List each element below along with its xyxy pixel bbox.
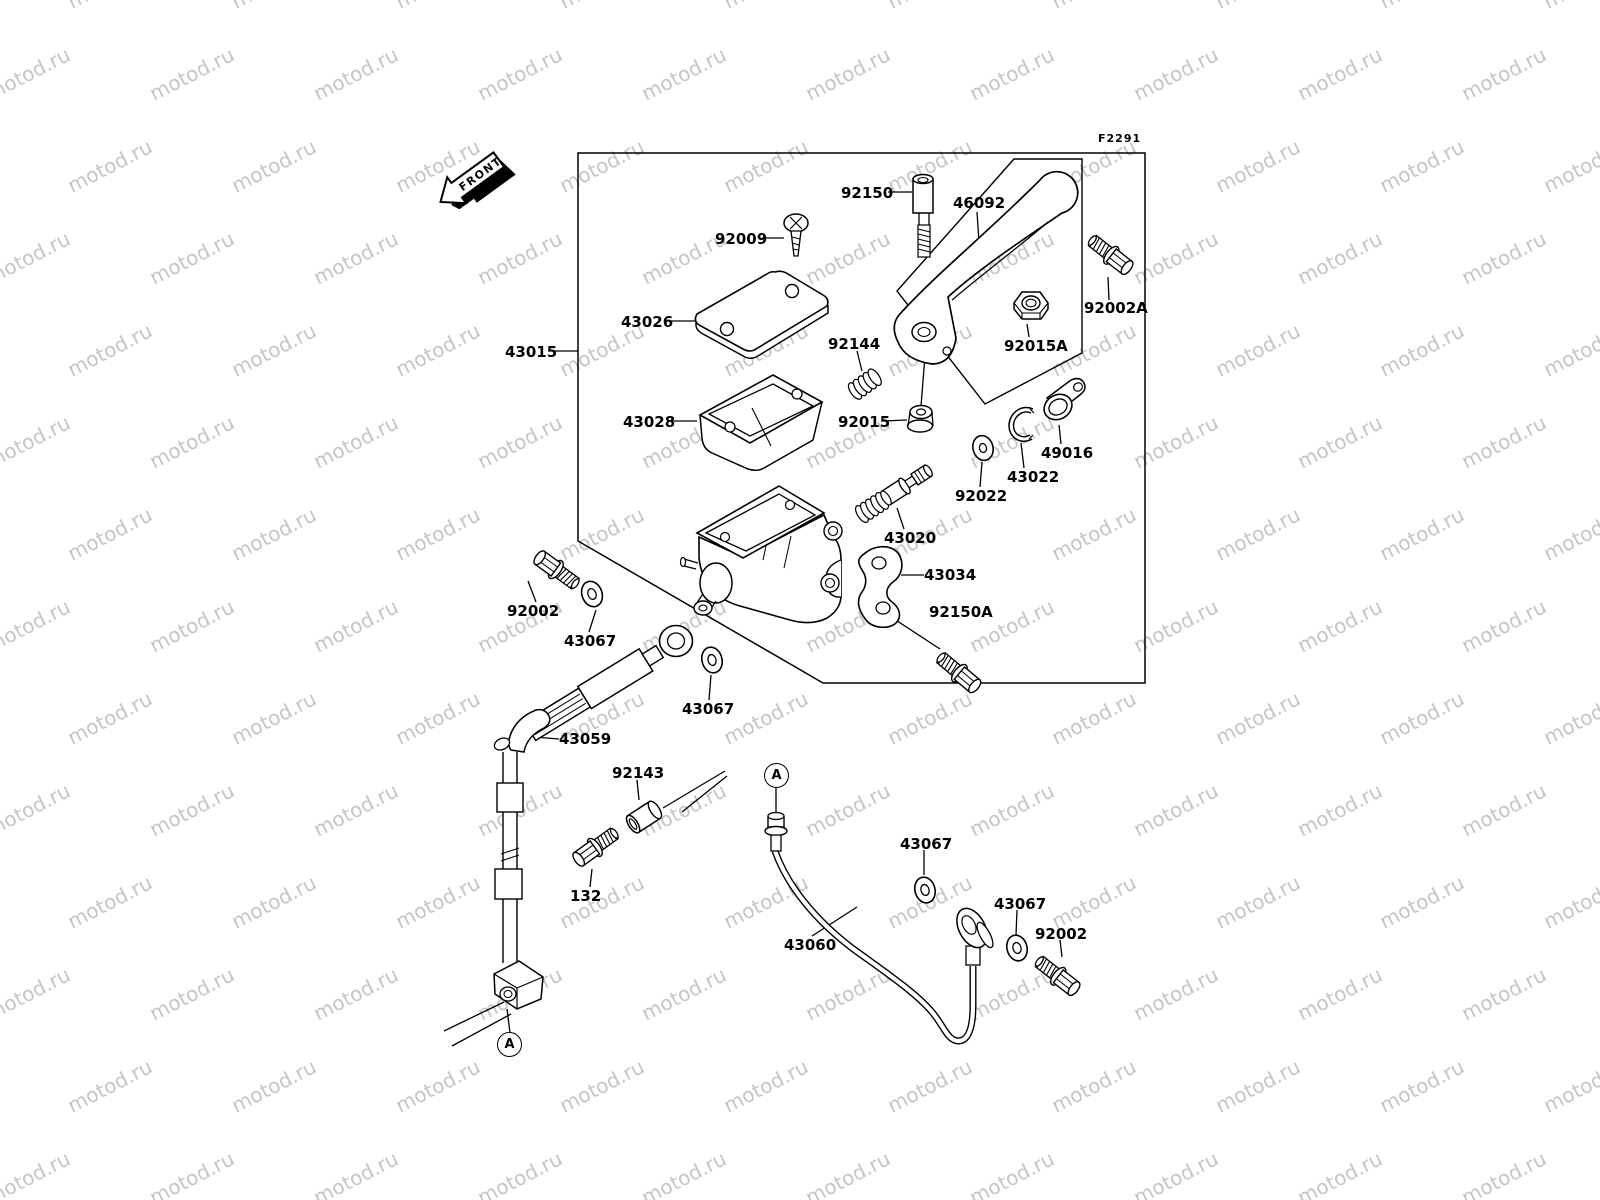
part-label-92150A: 92150A (929, 603, 993, 621)
part-label-43060: 43060 (784, 936, 836, 954)
part-label-92002A: 92002A (1084, 299, 1148, 317)
part-label-43059: 43059 (559, 730, 611, 748)
ref-circle-a-left: A (497, 1032, 522, 1057)
part-label-92022: 92022 (955, 487, 1007, 505)
part-label-92143: 92143 (612, 764, 664, 782)
part-label-43034: 43034 (924, 566, 976, 584)
part-label-43015: 43015 (505, 343, 557, 361)
part-label-132: 132 (570, 887, 601, 905)
label-layer: F2291 4301592009921504609243026921444302… (0, 0, 1600, 1200)
parts-diagram-page: motod.rumotod.rumotod.rumotod.rumotod.ru… (0, 0, 1600, 1200)
part-label-92150: 92150 (841, 184, 893, 202)
part-label-92015A: 92015A (1004, 337, 1068, 355)
part-label-43067-1: 43067 (564, 632, 616, 650)
part-label-46092: 46092 (953, 194, 1005, 212)
part-label-92015: 92015 (838, 413, 890, 431)
part-label-92144: 92144 (828, 335, 880, 353)
part-label-43026: 43026 (621, 313, 673, 331)
part-label-43067-4: 43067 (994, 895, 1046, 913)
part-label-43067-3: 43067 (900, 835, 952, 853)
part-label-43020: 43020 (884, 529, 936, 547)
ref-circle-a-right: A (764, 763, 789, 788)
fiche-code: F2291 (1098, 132, 1141, 145)
part-label-92009: 92009 (715, 230, 767, 248)
part-label-92002-left: 92002 (507, 602, 559, 620)
part-label-92002-right: 92002 (1035, 925, 1087, 943)
part-label-49016: 49016 (1041, 444, 1093, 462)
part-label-43067-2: 43067 (682, 700, 734, 718)
part-label-43028: 43028 (623, 413, 675, 431)
part-label-43022: 43022 (1007, 468, 1059, 486)
